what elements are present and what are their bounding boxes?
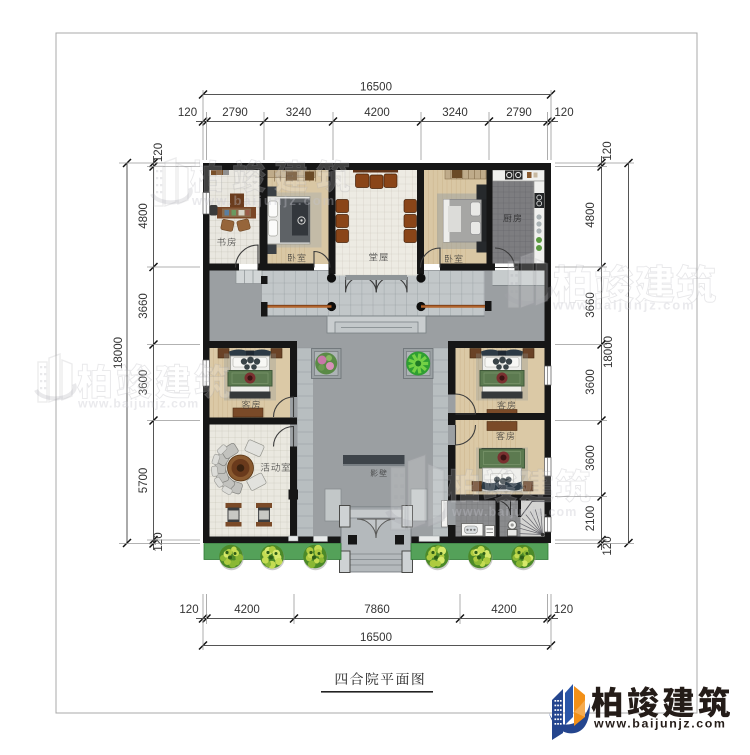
svg-text:120: 120	[153, 143, 165, 162]
svg-text:2790: 2790	[506, 107, 532, 119]
svg-text:120: 120	[179, 604, 198, 616]
svg-text:www.baijunjz.com: www.baijunjz.com	[552, 298, 696, 313]
svg-text:120: 120	[554, 604, 573, 616]
svg-text:4800: 4800	[138, 203, 150, 229]
svg-text:www.baijunjz.com: www.baijunjz.com	[451, 505, 577, 519]
svg-text:16500: 16500	[360, 82, 392, 94]
svg-text:3660: 3660	[138, 293, 150, 319]
svg-text:3240: 3240	[442, 107, 468, 119]
svg-text:2100: 2100	[585, 506, 597, 532]
svg-text:120: 120	[602, 536, 614, 555]
svg-text:www.baijunjz.com: www.baijunjz.com	[77, 397, 199, 411]
svg-text:7860: 7860	[364, 604, 390, 616]
svg-text:4800: 4800	[585, 202, 597, 228]
svg-text:120: 120	[602, 141, 614, 160]
svg-text:2790: 2790	[222, 107, 248, 119]
svg-text:www.baijunjz.com: www.baijunjz.com	[191, 193, 336, 208]
svg-text:3600: 3600	[585, 369, 597, 395]
svg-text:18000: 18000	[113, 337, 125, 369]
svg-text:120: 120	[153, 532, 165, 551]
svg-text:3600: 3600	[585, 445, 597, 471]
svg-text:120: 120	[554, 107, 573, 119]
svg-text:120: 120	[178, 107, 197, 119]
svg-text:4200: 4200	[364, 107, 390, 119]
svg-text:www.baijunjz.com: www.baijunjz.com	[593, 717, 727, 731]
svg-text:3240: 3240	[286, 107, 312, 119]
svg-text:5700: 5700	[138, 468, 150, 494]
svg-text:4200: 4200	[491, 604, 517, 616]
svg-text:4200: 4200	[234, 604, 260, 616]
svg-text:16500: 16500	[360, 632, 392, 644]
